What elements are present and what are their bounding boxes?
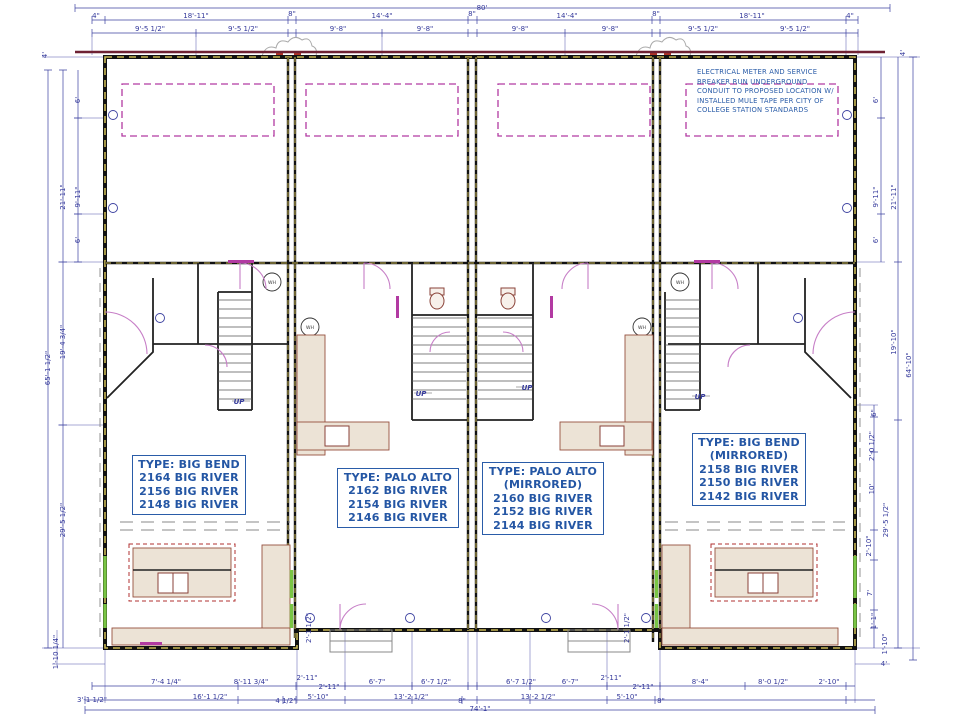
- floor-plan-canvas: 80'4"18'-11"8"14'-4"8"14'-4"8"18'-11"4"9…: [0, 0, 960, 720]
- dimension-label: 6': [74, 237, 82, 243]
- dimension-label: 5'-10": [307, 693, 328, 701]
- annotation-label: WH: [676, 280, 684, 286]
- dimension-label: 4': [881, 660, 887, 668]
- dimension-label: 2'-11": [600, 674, 621, 682]
- dimension-label: 65'-1 1/2": [44, 351, 52, 386]
- dimension-label: 9'-11": [74, 186, 82, 207]
- dimension-label: 19'-4 3/4": [59, 325, 67, 360]
- dimension-label: 2'-1 1/2": [623, 613, 631, 643]
- dimension-label: 9'-11": [872, 186, 880, 207]
- dimension-label: 8": [458, 697, 466, 705]
- dimension-label: 9'-8": [417, 25, 434, 33]
- unit-label-line: TYPE: BIG BEND: [136, 458, 242, 471]
- electrical-note-line: INSTALLED MULE TAPE PER CITY OF: [697, 97, 867, 107]
- annotation-label: WH: [306, 325, 314, 331]
- dimension-label: 9'-5 1/2": [780, 25, 810, 33]
- dimension-label: 4': [899, 50, 907, 56]
- dimension-label: 2'-11": [632, 683, 653, 691]
- unit-label-line: 2162 BIG RIVER: [341, 484, 455, 497]
- dimension-label: 13'-2 1/2": [394, 693, 429, 701]
- dimension-label: 6'-7": [562, 678, 579, 686]
- dimension-label: 21'-11": [890, 184, 898, 209]
- annotation-label: WH: [268, 280, 276, 286]
- unit-label-line: TYPE: PALO ALTO: [341, 471, 455, 484]
- dimension-label: 4": [92, 12, 100, 20]
- dimension-label: 14'-4": [556, 12, 577, 20]
- dimension-label: 9'-8": [602, 25, 619, 33]
- unit-label-line: TYPE: PALO ALTO: [486, 465, 600, 478]
- dimension-label: 14'-4": [371, 12, 392, 20]
- dimension-label: 18'-11": [183, 12, 208, 20]
- unit-label-line: 2146 BIG RIVER: [341, 511, 455, 524]
- dimension-label: 29'-5 1/2": [59, 503, 67, 538]
- dimension-label: 6'-7 1/2": [506, 678, 536, 686]
- dimension-label: 8": [468, 10, 476, 18]
- dimension-label: 4 1/2": [275, 697, 296, 705]
- entry-stoops: [330, 630, 630, 652]
- unit-label-line: 2160 BIG RIVER: [486, 492, 600, 505]
- dimension-label: 9'-5 1/2": [688, 25, 718, 33]
- annotation-label: UP: [522, 384, 534, 392]
- dimension-label: 1'-10": [881, 633, 889, 654]
- unit-label-big-bend: TYPE: BIG BEND 2164 BIG RIVER 2156 BIG R…: [132, 455, 246, 515]
- dimension-label: 3'-1 1/2": [77, 696, 107, 704]
- electrical-note-line: COLLEGE STATION STANDARDS: [697, 106, 867, 116]
- dimension-label: 16'-1 1/2": [193, 693, 228, 701]
- dimension-label: 7'-4 1/4": [151, 678, 181, 686]
- unit-label-line: TYPE: BIG BEND: [696, 436, 802, 449]
- dimension-label: 6'-7": [369, 678, 386, 686]
- dimension-label: 19'-10": [890, 329, 898, 354]
- dimension-label: 6'-7 1/2": [421, 678, 451, 686]
- dimension-label: 13'-2 1/2": [521, 693, 556, 701]
- dimension-label: 10': [868, 484, 876, 495]
- dimension-label: 2'-0 1/2": [868, 431, 876, 461]
- unit-label-big-bend-mirrored: TYPE: BIG BEND (MIRRORED) 2158 BIG RIVER…: [692, 433, 806, 506]
- dimension-label: 29'-5 1/2": [882, 503, 890, 538]
- dimension-label: 9'-8": [512, 25, 529, 33]
- annotation-label: UP: [695, 393, 707, 401]
- electrical-note-line: ELECTRICAL METER AND SERVICE: [697, 68, 867, 78]
- dimension-label: 18'-11": [739, 12, 764, 20]
- unit-label-line: 2150 BIG RIVER: [696, 476, 802, 489]
- dimension-label: 2'-10": [865, 535, 873, 556]
- dimension-label: 64'-10": [905, 352, 913, 377]
- dimension-label: 80': [477, 4, 488, 12]
- dimension-label: 8": [652, 10, 660, 18]
- unit-label-line: 2142 BIG RIVER: [696, 490, 802, 503]
- electrical-note-line: BREAKER RUN UNDERGROUND: [697, 78, 867, 88]
- dimension-label: 4': [41, 52, 49, 58]
- dimension-label: 74'-1": [469, 705, 490, 713]
- dimension-label: 8": [288, 10, 296, 18]
- dimension-label: 2'-11": [296, 674, 317, 682]
- dimension-label: 1'-10 1/4": [52, 635, 60, 670]
- unit-label-line: 2156 BIG RIVER: [136, 485, 242, 498]
- unit-label-line: 2148 BIG RIVER: [136, 498, 242, 511]
- electrical-note-line: CONDUIT TO PROPOSED LOCATION W/: [697, 87, 867, 97]
- unit-label-line: 2152 BIG RIVER: [486, 505, 600, 518]
- unit-label-palo-alto: TYPE: PALO ALTO 2162 BIG RIVER 2154 BIG …: [337, 468, 459, 528]
- dimension-label: 9'-5 1/2": [135, 25, 165, 33]
- unit-label-line: 2154 BIG RIVER: [341, 498, 455, 511]
- dimension-label: 2'-11": [318, 683, 339, 691]
- dimension-label: 5'-10": [616, 693, 637, 701]
- electrical-note: ELECTRICAL METER AND SERVICE BREAKER RUN…: [697, 68, 867, 116]
- unit-label-line: (MIRRORED): [486, 478, 600, 491]
- dimension-label: 2'-1 1/2": [305, 613, 313, 643]
- unit-label-line: 2164 BIG RIVER: [136, 471, 242, 484]
- dimension-label: 8'-11 3/4": [234, 678, 269, 686]
- dimension-label: 8'-4": [692, 678, 709, 686]
- dimension-label: 8'-0 1/2": [758, 678, 788, 686]
- unit-label-palo-alto-mirrored: TYPE: PALO ALTO (MIRRORED) 2160 BIG RIVE…: [482, 462, 604, 535]
- dimension-label: 1'-1": [870, 613, 878, 630]
- unit-label-line: 2158 BIG RIVER: [696, 463, 802, 476]
- dimension-label: 9'-8": [330, 25, 347, 33]
- annotation-label: WH: [638, 325, 646, 331]
- dimension-label: 2'-10": [818, 678, 839, 686]
- unit-label-line: 2144 BIG RIVER: [486, 519, 600, 532]
- annotation-label: UP: [234, 398, 246, 406]
- unit-label-line: (MIRRORED): [696, 449, 802, 462]
- dimension-label: 7': [866, 590, 874, 596]
- annotation-label: UP: [416, 390, 428, 398]
- dimension-label: 6': [872, 237, 880, 243]
- dimension-label: 4": [846, 12, 854, 20]
- dimension-label: 6': [74, 97, 82, 103]
- dimension-label: 8": [657, 697, 665, 705]
- dimension-label: 21'-11": [59, 184, 67, 209]
- dimension-label: 9'-5 1/2": [228, 25, 258, 33]
- dimension-label: 6': [872, 97, 880, 103]
- dimension-label: 6": [870, 409, 878, 417]
